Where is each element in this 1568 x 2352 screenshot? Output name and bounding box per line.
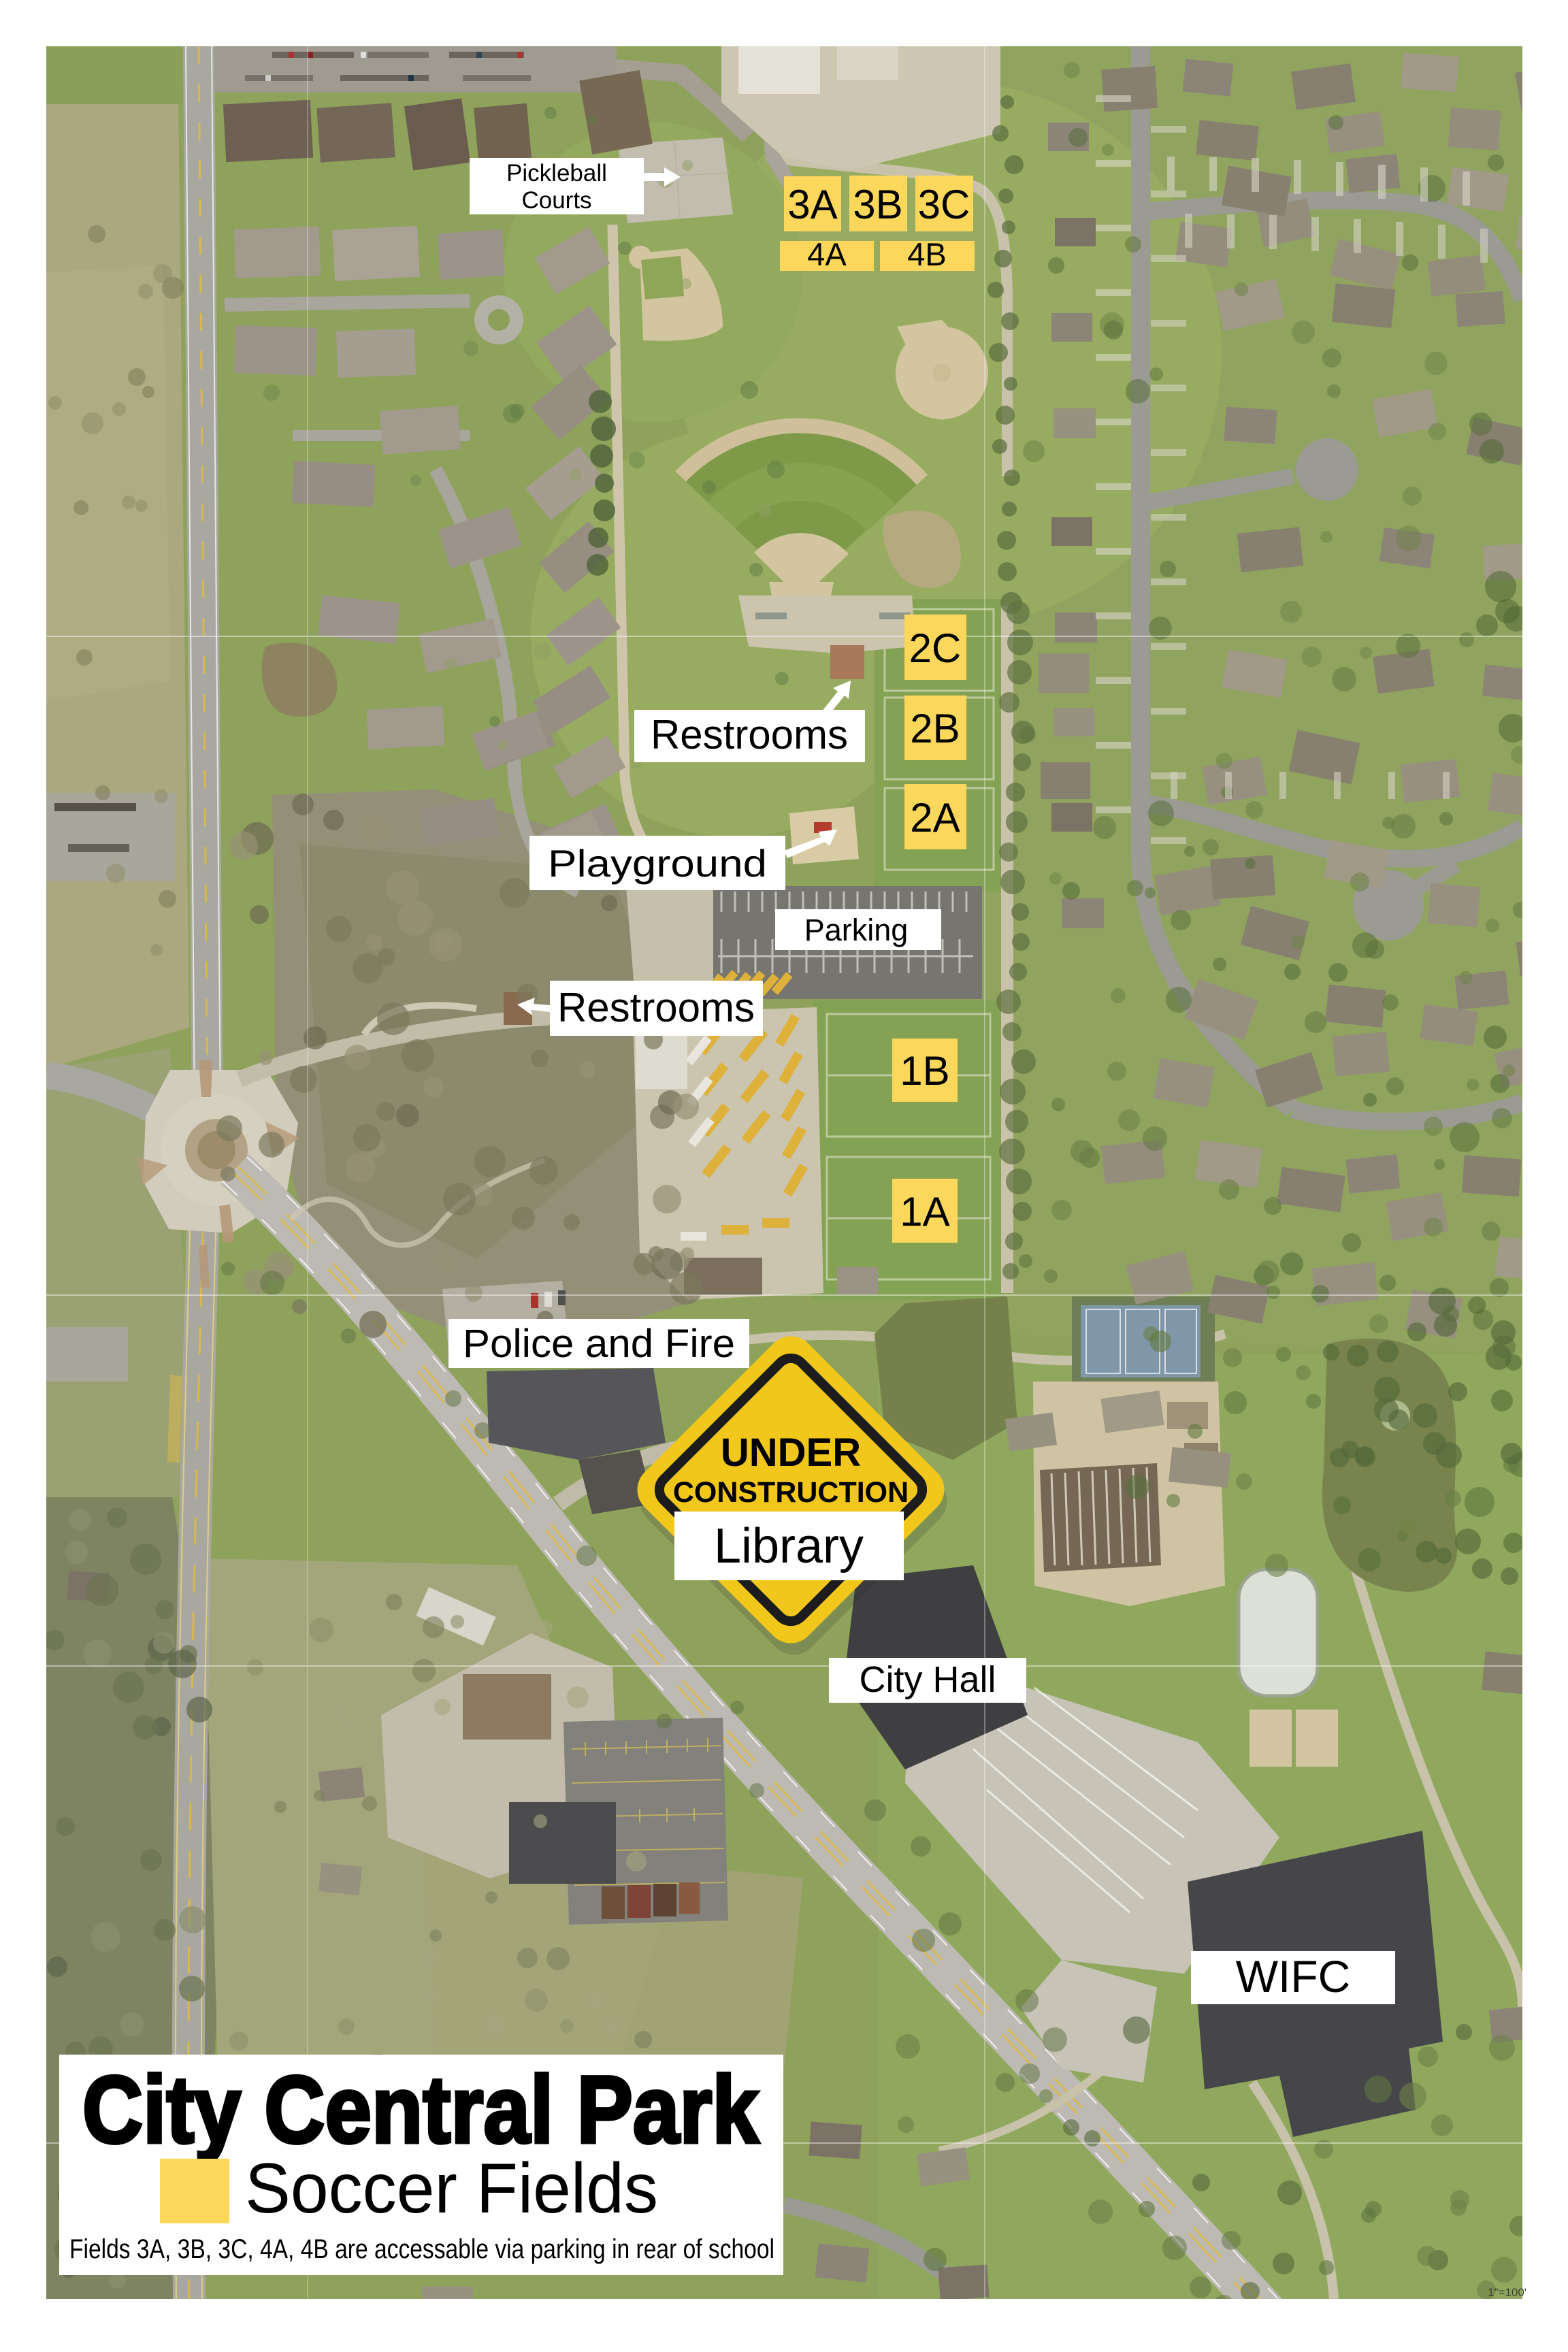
svg-text:Parking: Parking (804, 913, 909, 947)
svg-text:4A: 4A (807, 236, 847, 272)
svg-text:Courts: Courts (521, 187, 591, 214)
svg-text:City Hall: City Hall (859, 1659, 996, 1700)
svg-text:Restrooms: Restrooms (557, 985, 755, 1030)
svg-text:Pickleball: Pickleball (506, 160, 607, 186)
svg-text:2B: 2B (910, 706, 960, 751)
svg-text:Police and Fire: Police and Fire (463, 1322, 735, 1366)
svg-text:UNDER: UNDER (721, 1431, 861, 1475)
svg-text:Soccer Fields: Soccer Fields (245, 2149, 658, 2228)
svg-text:2A: 2A (910, 795, 960, 840)
svg-text:WIFC: WIFC (1236, 1951, 1351, 2002)
svg-text:Playground: Playground (548, 842, 767, 885)
svg-text:4B: 4B (907, 236, 947, 272)
svg-text:City Central Park: City Central Park (82, 2056, 759, 2163)
svg-text:3A: 3A (787, 182, 837, 227)
svg-text:1A: 1A (900, 1189, 949, 1235)
svg-text:1"=100': 1"=100' (1488, 2286, 1526, 2299)
svg-text:2C: 2C (909, 625, 962, 671)
svg-text:Fields 3A, 3B, 3C, 4A, 4B are: Fields 3A, 3B, 3C, 4A, 4B are accessable… (69, 2234, 774, 2264)
svg-text:Library: Library (714, 1519, 864, 1573)
svg-text:1B: 1B (900, 1048, 949, 1094)
svg-text:3B: 3B (853, 182, 902, 227)
svg-text:3C: 3C (918, 182, 970, 227)
svg-text:Restrooms: Restrooms (651, 712, 848, 757)
svg-text:CONSTRUCTION: CONSTRUCTION (673, 1476, 909, 1509)
